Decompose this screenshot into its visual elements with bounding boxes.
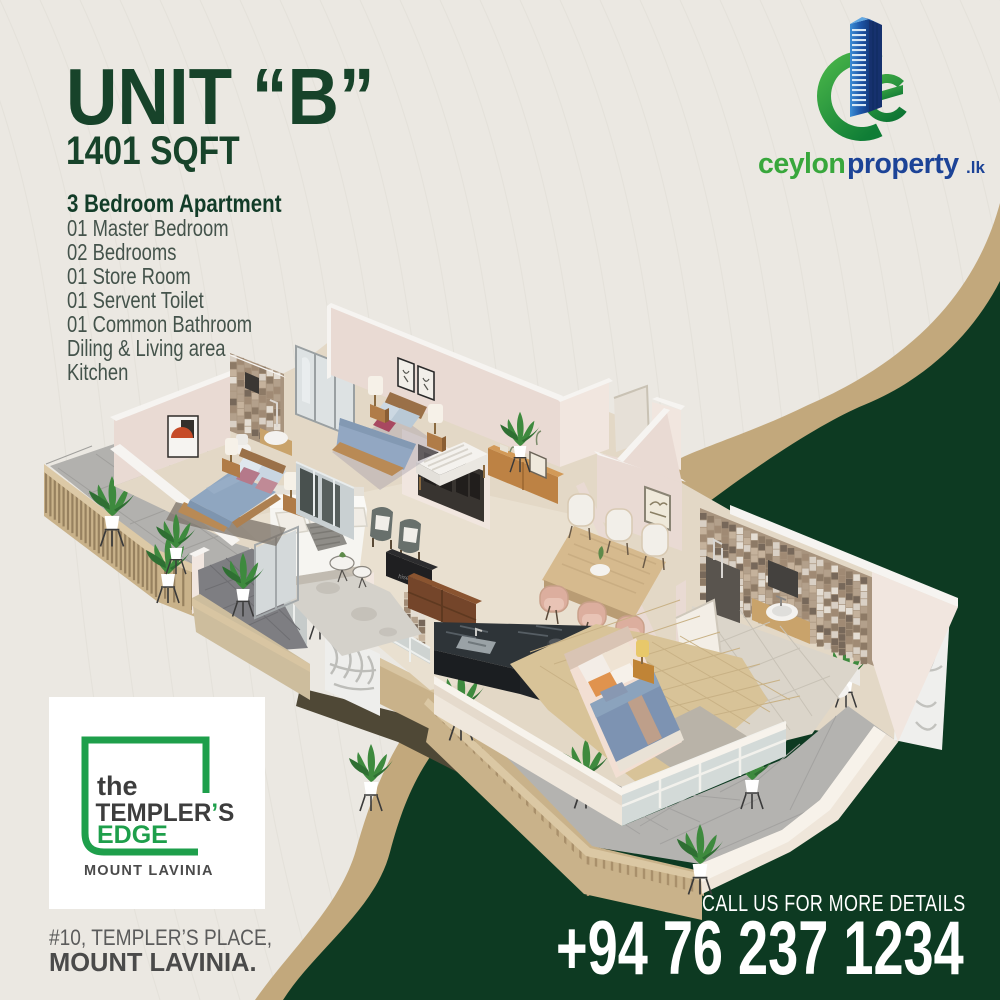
svg-text:the: the — [97, 771, 138, 801]
svg-text:MOUNT LAVINIA: MOUNT LAVINIA — [84, 863, 214, 879]
svg-text:EDGE: EDGE — [97, 821, 168, 849]
